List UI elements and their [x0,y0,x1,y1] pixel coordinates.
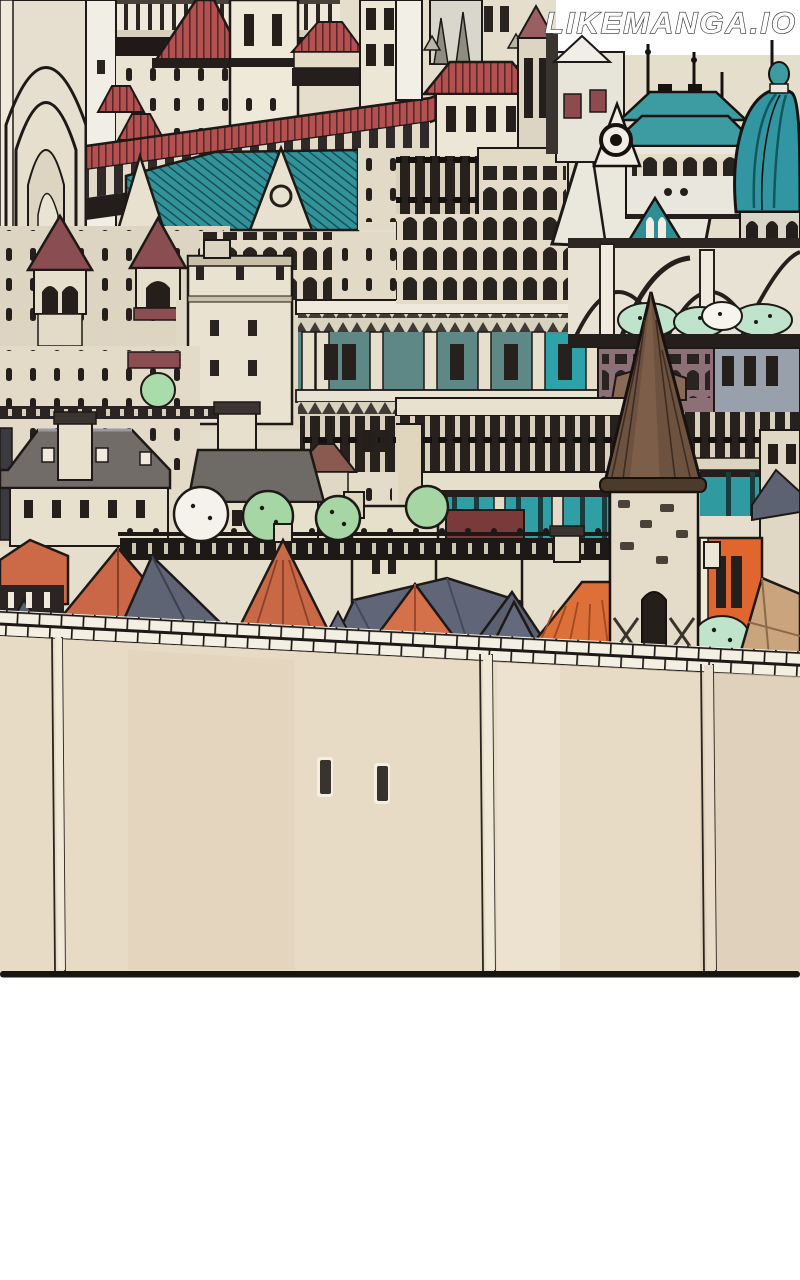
svg-text:LIKEMANGA.IO: LIKEMANGA.IO [545,7,797,40]
